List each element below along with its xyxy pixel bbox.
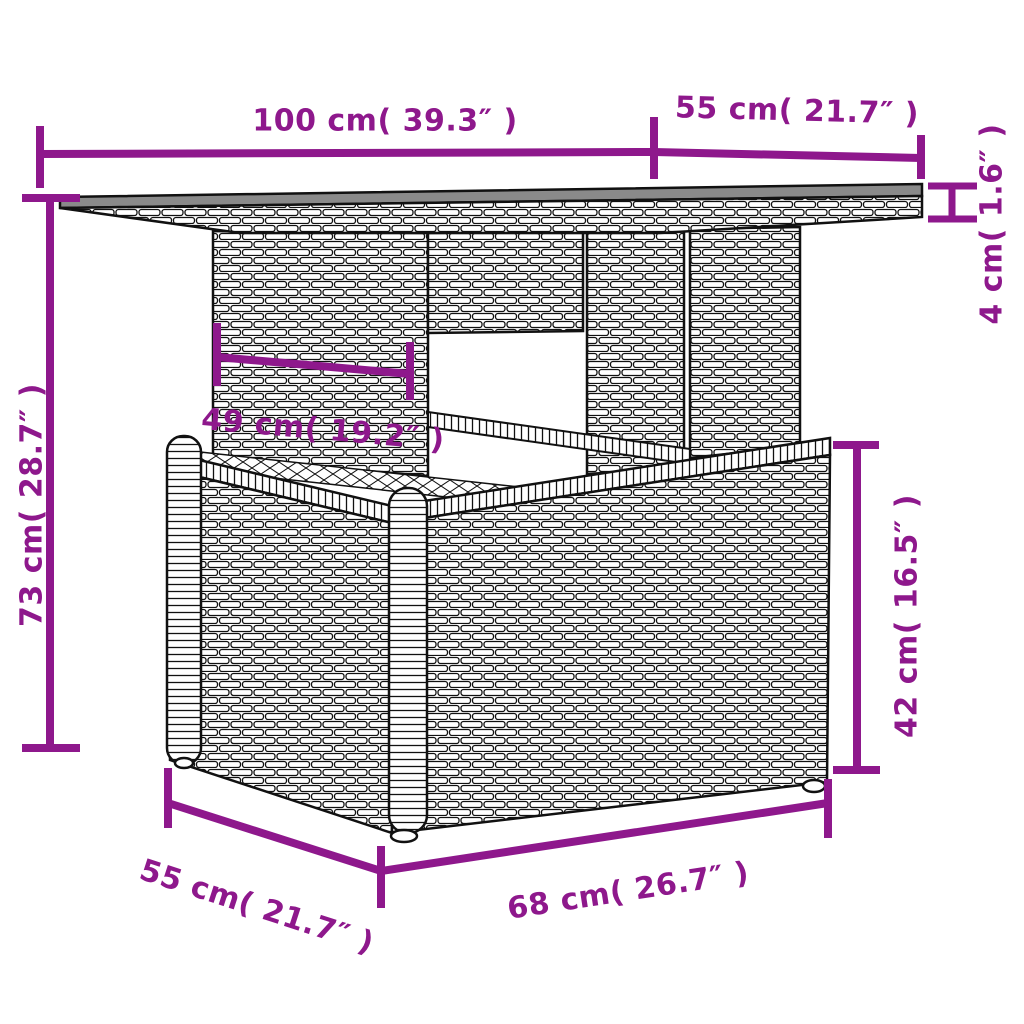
dimension-diagram-page: 100 cm( 39.3″ ) 55 cm( 21.7″ ) 4 cm( 1.6… xyxy=(0,0,1024,1024)
label-base-width: 68 cm( 26.7″ ) xyxy=(505,855,751,927)
label-top-depth: 55 cm( 21.7″ ) xyxy=(675,90,920,131)
box-foot xyxy=(803,780,825,792)
label-top-thickness: 4 cm( 1.6″ ) xyxy=(975,123,1010,324)
label-base-height: 42 cm( 16.5″ ) xyxy=(890,494,925,738)
label-overall-height: 73 cm( 28.7″ ) xyxy=(15,383,50,627)
box-foot xyxy=(391,830,417,842)
label-top-width: 100 cm( 39.3″ ) xyxy=(252,104,517,139)
table-top xyxy=(60,184,922,233)
storage-box xyxy=(167,412,830,842)
dim-line-top-width xyxy=(40,152,654,154)
box-foot xyxy=(175,758,193,768)
support-lintel xyxy=(428,231,583,333)
dim-line-top-depth xyxy=(654,152,921,158)
box-corner-post-near xyxy=(389,488,427,833)
dimension-diagram: 100 cm( 39.3″ ) 55 cm( 21.7″ ) 4 cm( 1.6… xyxy=(0,0,1024,1024)
label-base-depth: 55 cm( 21.7″ ) xyxy=(135,853,378,962)
box-corner-post-left xyxy=(167,436,201,764)
box-face-left xyxy=(170,470,392,833)
support-panel-right xyxy=(690,227,800,458)
box-face-front xyxy=(392,455,830,833)
